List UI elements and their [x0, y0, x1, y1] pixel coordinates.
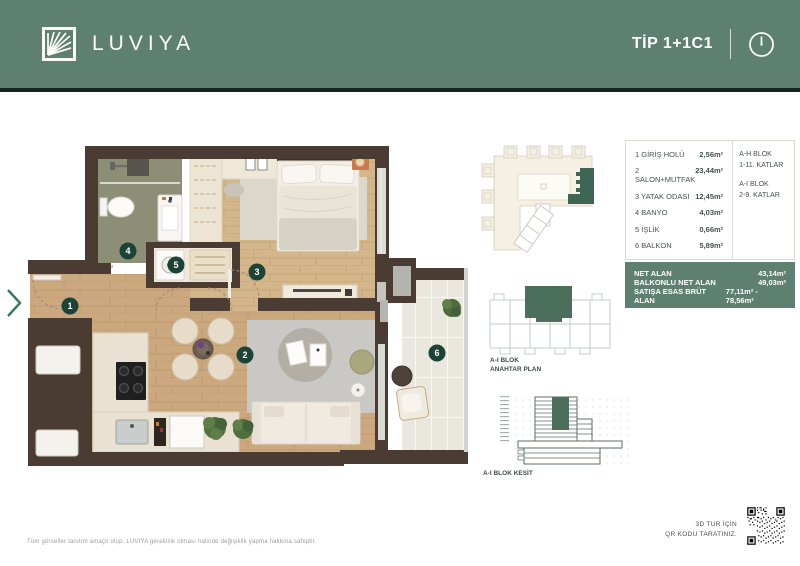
floor-plan-page: LUVIYA TİP 1+1C1	[0, 0, 800, 566]
key-plan-block: A-I BLOK	[490, 357, 519, 364]
block-name: A-H BLOK	[739, 150, 788, 161]
table-row: 5 İŞLİK0,66m²	[635, 225, 723, 234]
qr-line2: QR KODU TARATINIZ.	[665, 530, 737, 540]
room-badge: 5	[168, 257, 185, 274]
room-label: 2 SALON+MUTFAK	[635, 166, 695, 184]
room-badge: 3	[249, 264, 266, 281]
summary-value: 43,14m²	[758, 269, 786, 278]
room-badge: 1	[62, 298, 79, 315]
room-badge: 4	[120, 243, 137, 260]
room-label: 1 GİRİŞ HOLÜ	[635, 150, 685, 159]
brand-name: LUVIYA	[92, 32, 195, 56]
summary-row: BALKONLU NET ALAN49,03m²	[634, 278, 786, 287]
room-label: 4 BANYO	[635, 208, 668, 217]
room-label: 3 YATAK ODASI	[635, 192, 689, 201]
unit-type-label: TİP 1+1C1	[632, 35, 713, 53]
area-summary-panel: NET ALAN43,14m² BALKONLU NET ALAN49,03m²…	[625, 262, 795, 308]
svg-text:5: 5	[173, 260, 178, 270]
header-bar: LUVIYA TİP 1+1C1	[0, 0, 800, 88]
room-label: 6 BALKON	[635, 241, 672, 250]
summary-label: NET ALAN	[634, 269, 672, 278]
brand-logo: LUVIYA	[40, 25, 195, 63]
table-row: 1 GİRİŞ HOLÜ2,56m²	[635, 150, 723, 159]
room-badge: 2	[237, 347, 254, 364]
room-area-table: 1 GİRİŞ HOLÜ2,56m² 2 SALON+MUTFAK23,44m²…	[625, 140, 795, 260]
room-list: 1 GİRİŞ HOLÜ2,56m² 2 SALON+MUTFAK23,44m²…	[626, 141, 732, 259]
block-floors: 2-9. KATLAR	[739, 191, 788, 202]
floor-level-ticks	[500, 396, 509, 441]
section-diagram: A-I BLOK KESİT	[480, 392, 635, 478]
svg-text:3: 3	[254, 267, 259, 277]
luviya-logo-icon	[40, 25, 78, 63]
room-badge: 6	[429, 345, 446, 362]
room-area: 0,66m²	[699, 225, 723, 234]
living-room-furniture	[233, 320, 378, 444]
qr-code	[746, 506, 786, 546]
room-label: 5 İŞLİK	[635, 225, 660, 234]
summary-label: SATIŞA ESAS BRÜT ALAN	[634, 287, 726, 305]
table-row: 6 BALKON5,89m²	[635, 241, 723, 250]
key-plan-image: A-I BLOK ANAHTAR PLAN	[480, 278, 620, 373]
block-name: A-I BLOK	[739, 180, 788, 191]
summary-row: NET ALAN43,14m²	[634, 269, 786, 278]
table-row: 3 YATAK ODASI12,45m²	[635, 192, 723, 201]
highlighted-section-unit	[552, 397, 569, 430]
section-label: A-I BLOK KESİT	[483, 469, 533, 477]
room-area: 23,44m²	[695, 166, 723, 184]
room-area: 4,03m²	[699, 208, 723, 217]
block-item: A-H BLOK 1-11. KATLAR	[739, 150, 788, 171]
table-row: 4 BANYO4,03m²	[635, 208, 723, 217]
summary-row: SATIŞA ESAS BRÜT ALAN77,11m² - 78,56m²	[634, 287, 786, 305]
table-row: 2 SALON+MUTFAK23,44m²	[635, 166, 723, 184]
header-divider	[730, 29, 731, 59]
room-area: 12,45m²	[695, 192, 723, 201]
qr-line1: 3D TUR İÇİN	[665, 520, 737, 530]
key-plan-label: ANAHTAR PLAN	[490, 366, 541, 373]
room-area: 2,56m²	[699, 150, 723, 159]
svg-text:4: 4	[125, 246, 130, 256]
svg-text:2: 2	[242, 350, 247, 360]
block-floors-list: A-H BLOK 1-11. KATLAR A-I BLOK 2-9. KATL…	[732, 141, 794, 259]
clock-icon[interactable]	[748, 31, 775, 58]
block-floors: 1-11. KATLAR	[739, 161, 788, 172]
header-underline	[0, 88, 800, 92]
highlighted-unit	[525, 286, 572, 322]
svg-text:1: 1	[67, 301, 72, 311]
summary-value: 77,11m² - 78,56m²	[726, 287, 786, 305]
svg-text:6: 6	[434, 348, 439, 358]
disclaimer-text: Tüm görseller tanıtım amaçlı olup, LUVIY…	[27, 539, 316, 545]
summary-label: BALKONLU NET ALAN	[634, 278, 716, 287]
floor-plan-image: 1 2 3 4 5 6	[0, 138, 478, 483]
room-area: 5,89m²	[699, 241, 723, 250]
site-plan-image	[480, 142, 615, 267]
block-item: A-I BLOK 2-9. KATLAR	[739, 180, 788, 201]
qr-instruction: 3D TUR İÇİN QR KODU TARATINIZ.	[665, 520, 737, 541]
entry-arrow-icon[interactable]	[8, 290, 20, 316]
summary-value: 49,03m²	[758, 278, 786, 287]
laundry-niche	[146, 242, 240, 288]
